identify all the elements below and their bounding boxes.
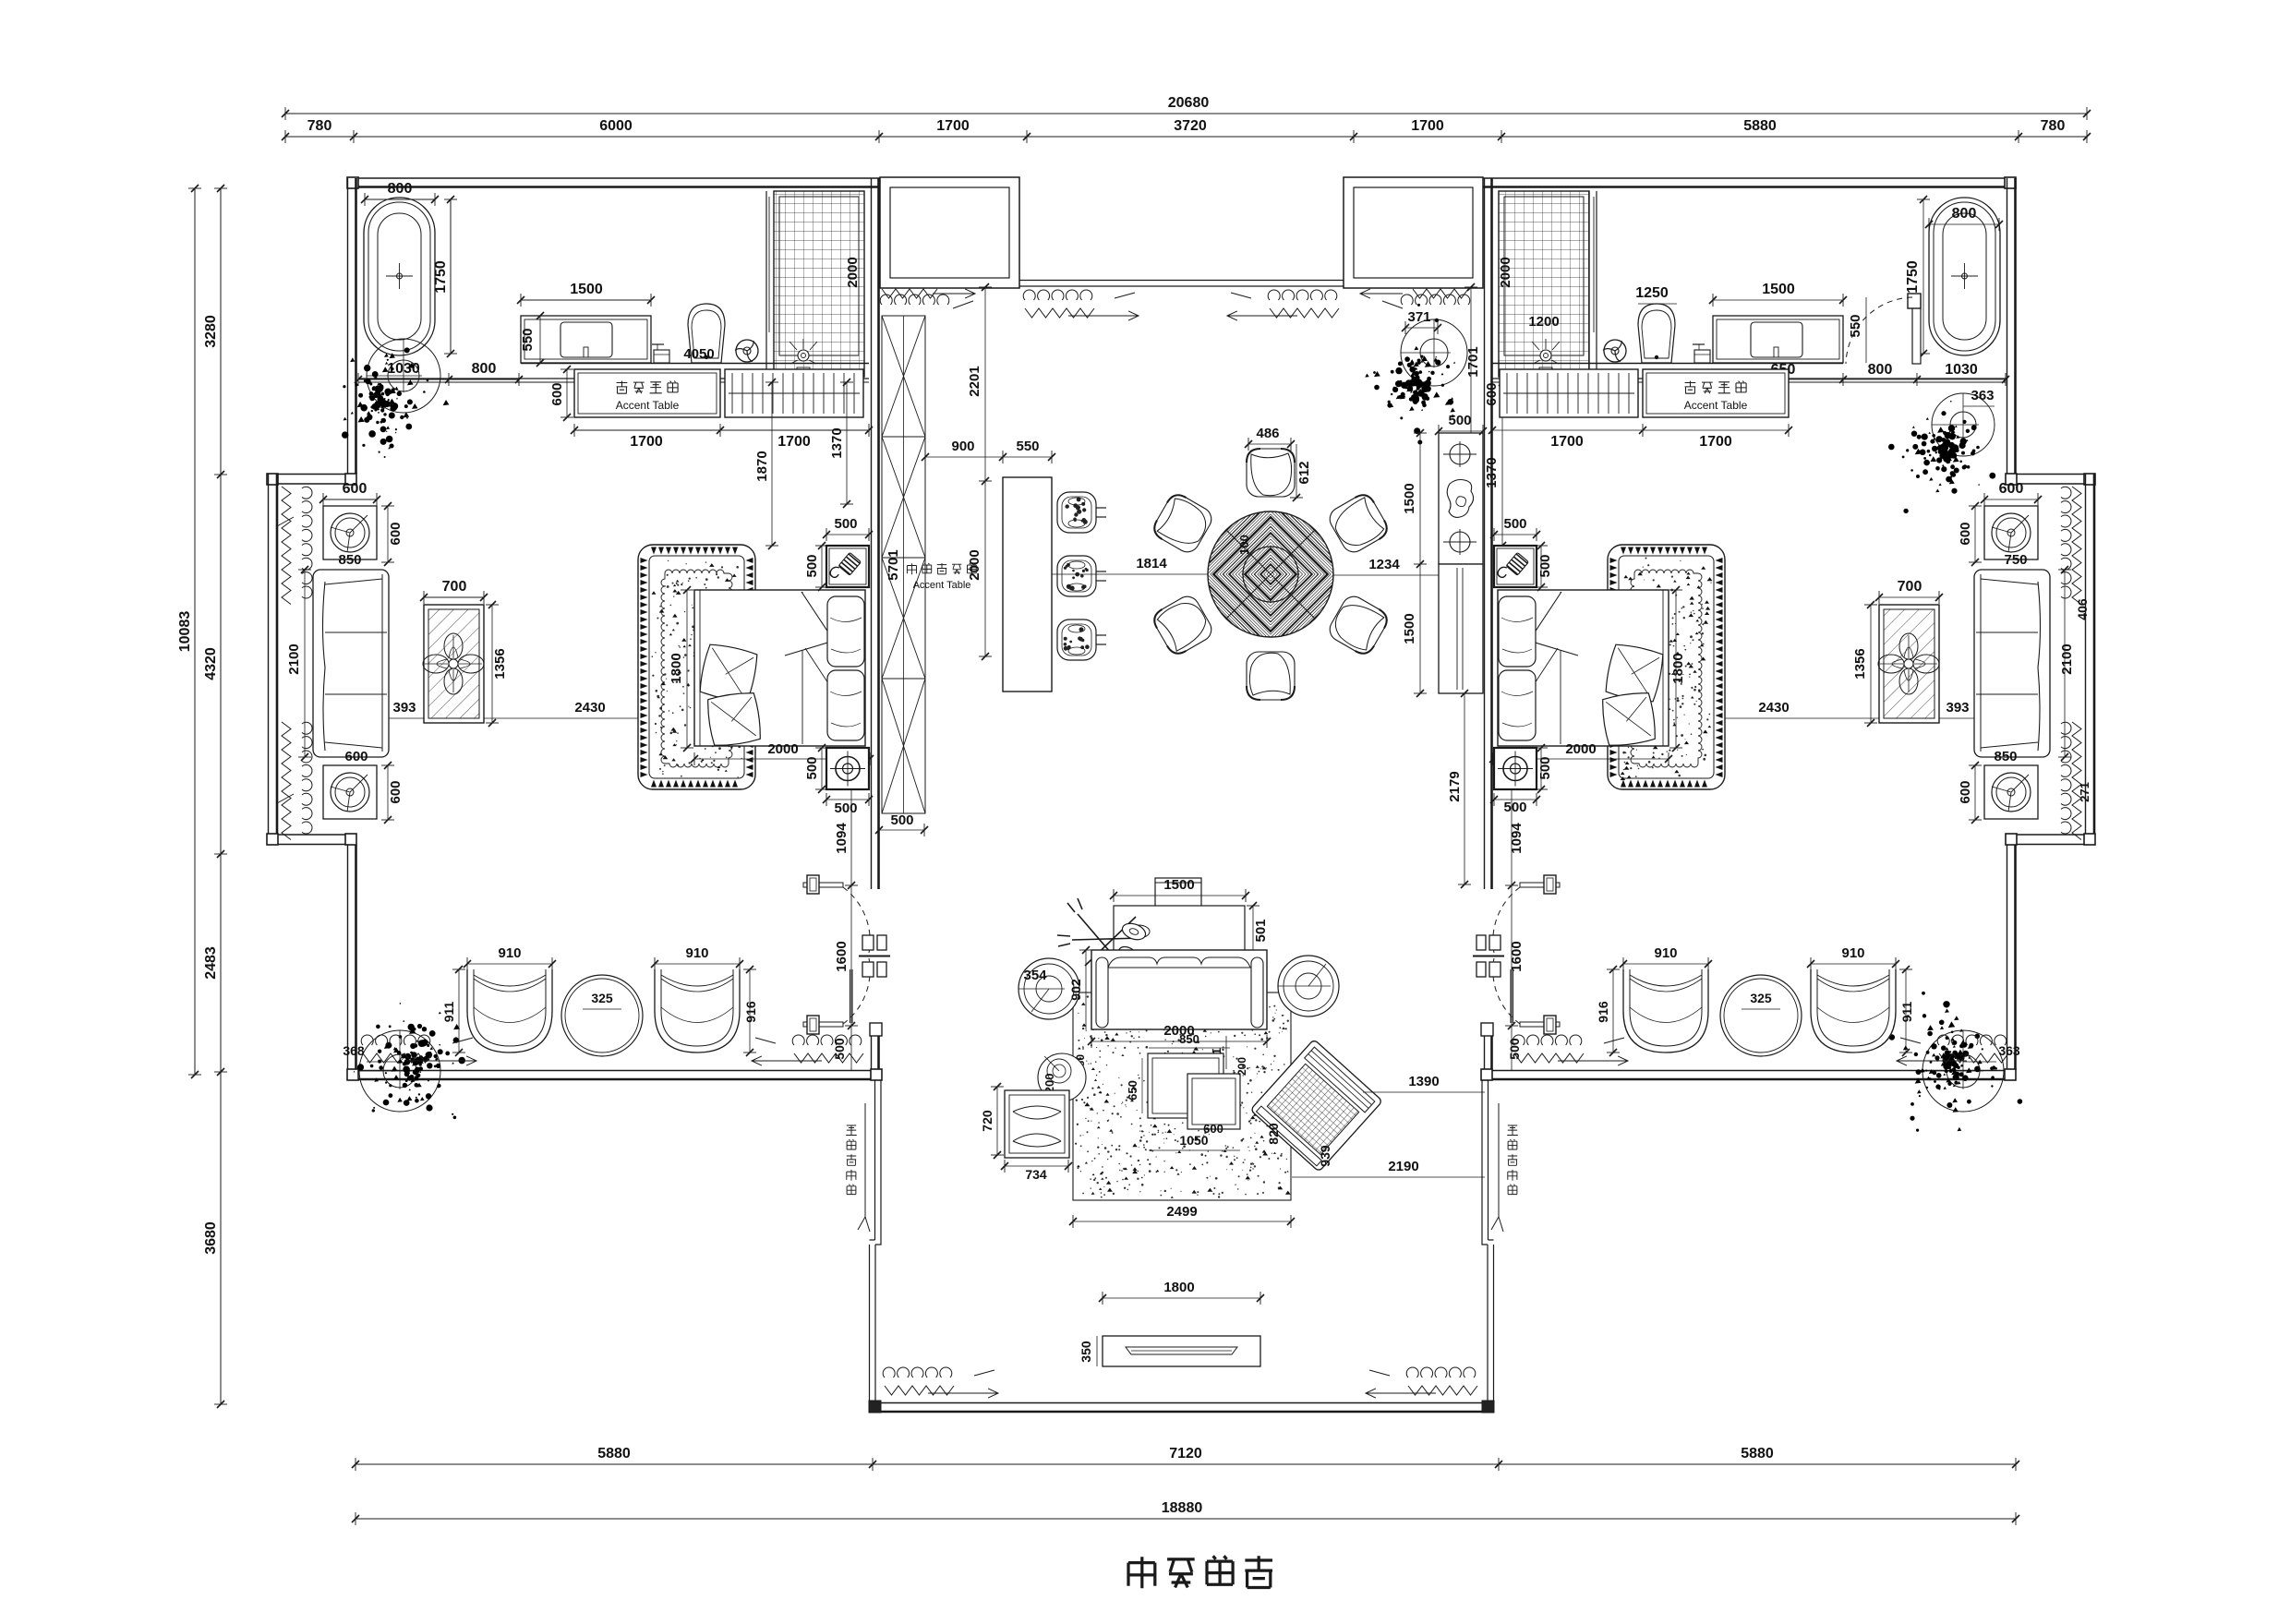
svg-text:371: 371 [1407,309,1430,325]
svg-text:1500: 1500 [1402,613,1417,644]
svg-text:393: 393 [1946,700,1969,716]
svg-text:600: 600 [1484,382,1500,405]
svg-text:550: 550 [520,328,536,351]
svg-text:911: 911 [1899,1001,1914,1022]
svg-text:1700: 1700 [1411,118,1444,134]
svg-text:1750: 1750 [1905,260,1921,294]
svg-text:1600: 1600 [1509,941,1525,971]
svg-text:500: 500 [1503,800,1526,815]
svg-text:2000: 2000 [767,741,798,757]
svg-text:10083: 10083 [177,611,193,653]
svg-text:700: 700 [1898,579,1922,595]
svg-text:1800: 1800 [1163,1280,1194,1295]
svg-text:350: 350 [1079,1341,1093,1363]
svg-text:2000: 2000 [1498,257,1513,287]
svg-text:2201: 2201 [967,366,982,396]
svg-text:1500: 1500 [1762,282,1795,297]
svg-text:4320: 4320 [203,647,219,680]
svg-text:1030: 1030 [1945,362,1978,378]
svg-text:1870: 1870 [754,451,770,481]
svg-text:1814: 1814 [1136,556,1167,571]
svg-text:325: 325 [1750,991,1772,1005]
svg-text:916: 916 [743,1001,758,1023]
svg-text:363: 363 [1971,388,1994,403]
svg-text:800: 800 [472,361,497,377]
svg-text:Accent Table: Accent Table [1684,399,1748,412]
svg-text:1050: 1050 [1179,1133,1208,1148]
svg-text:500: 500 [1537,554,1553,577]
svg-text:1750: 1750 [433,260,449,294]
svg-text:500: 500 [1507,1038,1522,1060]
svg-text:501: 501 [1253,919,1269,942]
svg-text:406: 406 [2075,598,2090,620]
svg-text:910: 910 [685,945,708,961]
svg-text:2179: 2179 [1447,771,1463,801]
svg-text:1700: 1700 [777,434,811,450]
svg-text:5880: 5880 [1741,1446,1774,1462]
svg-text:1700: 1700 [630,434,663,450]
svg-text:1500: 1500 [1402,483,1417,513]
svg-text:2190: 2190 [1388,1159,1418,1174]
svg-text:7120: 7120 [1169,1446,1202,1462]
svg-text:916: 916 [1596,1001,1610,1023]
svg-text:600: 600 [1958,780,1973,803]
svg-text:500: 500 [1537,756,1553,779]
svg-text:5880: 5880 [597,1446,631,1462]
svg-text:500: 500 [804,756,820,779]
svg-text:1700: 1700 [1550,434,1584,450]
svg-text:820: 820 [1266,1123,1281,1145]
svg-text:650: 650 [1126,1080,1139,1101]
svg-text:910: 910 [498,945,521,961]
svg-text:612: 612 [1296,461,1312,484]
svg-text:1356: 1356 [1852,648,1868,679]
svg-text:20680: 20680 [1168,95,1210,111]
svg-text:3720: 3720 [1174,118,1207,134]
svg-text:911: 911 [441,1001,456,1022]
svg-text:368: 368 [343,1043,365,1058]
svg-text:600: 600 [388,780,404,803]
svg-text:2000: 2000 [845,257,861,287]
svg-text:600: 600 [388,522,404,545]
svg-text:900: 900 [951,439,974,454]
svg-text:720: 720 [980,1110,994,1132]
svg-text:2000: 2000 [1565,741,1596,757]
svg-text:1390: 1390 [1408,1074,1439,1089]
svg-text:850: 850 [1994,749,2017,764]
svg-text:1700: 1700 [936,118,970,134]
svg-text:780: 780 [307,118,332,134]
svg-text:500: 500 [1448,413,1471,428]
svg-text:363: 363 [1998,1043,2020,1058]
svg-text:1234: 1234 [1368,557,1400,572]
svg-text:500: 500 [834,800,857,816]
svg-text:6000: 6000 [599,118,633,134]
svg-text:500: 500 [804,554,820,577]
svg-text:700: 700 [442,579,467,595]
svg-text:354: 354 [1023,968,1047,983]
svg-text:1370: 1370 [829,427,845,458]
svg-text:18880: 18880 [1162,1500,1203,1516]
svg-text:600: 600 [1999,481,2024,497]
svg-text:200: 200 [1235,1057,1248,1076]
svg-text:2100: 2100 [2059,644,2075,674]
svg-text:902: 902 [1068,979,1083,1001]
svg-text:486: 486 [1256,426,1279,441]
svg-text:2000: 2000 [967,549,982,580]
svg-text:800: 800 [388,181,413,197]
svg-text:2499: 2499 [1166,1204,1197,1220]
svg-text:850: 850 [1179,1032,1199,1046]
svg-text:2430: 2430 [574,700,605,716]
svg-text:800: 800 [1868,362,1893,378]
svg-text:100: 100 [1237,535,1251,555]
svg-text:1500: 1500 [1163,877,1194,893]
svg-text:600: 600 [344,749,368,764]
svg-text:4050: 4050 [683,346,714,362]
svg-text:910: 910 [1654,945,1677,961]
svg-text:3680: 3680 [203,1221,219,1255]
svg-text:1500: 1500 [570,282,603,297]
svg-text:2483: 2483 [203,946,219,980]
svg-text:600: 600 [549,382,565,405]
svg-text:1094: 1094 [1509,823,1525,854]
svg-text:780: 780 [2041,118,2066,134]
svg-text:500: 500 [834,516,857,532]
svg-text:393: 393 [392,700,416,716]
svg-text:600: 600 [343,481,368,497]
svg-text:750: 750 [2004,552,2027,568]
svg-text:1701: 1701 [1465,346,1481,377]
svg-text:850: 850 [338,552,361,568]
svg-text:1200: 1200 [1528,314,1559,330]
svg-text:1356: 1356 [492,648,508,679]
svg-text:500: 500 [1503,516,1526,532]
svg-text:910: 910 [1841,945,1864,961]
svg-text:1600: 1600 [834,941,850,971]
svg-text:325: 325 [591,991,613,1005]
svg-text:600: 600 [1958,522,1973,545]
svg-text:550: 550 [1016,439,1039,454]
svg-text:1800: 1800 [1670,653,1686,683]
svg-text:1700: 1700 [1699,434,1732,450]
svg-text:1250: 1250 [1635,285,1669,301]
svg-text:500: 500 [832,1038,847,1060]
svg-text:734: 734 [1025,1167,1047,1182]
svg-text:Accent Table: Accent Table [913,580,971,591]
svg-text:5880: 5880 [1743,118,1777,134]
svg-text:1094: 1094 [834,823,850,854]
svg-text:3280: 3280 [203,315,219,348]
svg-text:5701: 5701 [886,549,901,580]
svg-text:550: 550 [1848,314,1863,337]
svg-text:2100: 2100 [286,644,302,674]
svg-text:1370: 1370 [1484,457,1500,487]
svg-text:Accent Table: Accent Table [616,399,680,412]
svg-text:939: 939 [1318,1145,1332,1167]
svg-text:500: 500 [890,812,913,828]
svg-text:1800: 1800 [669,653,684,683]
svg-text:2430: 2430 [1758,700,1789,716]
svg-text:271: 271 [2078,782,2091,802]
svg-text:800: 800 [1952,206,1977,222]
